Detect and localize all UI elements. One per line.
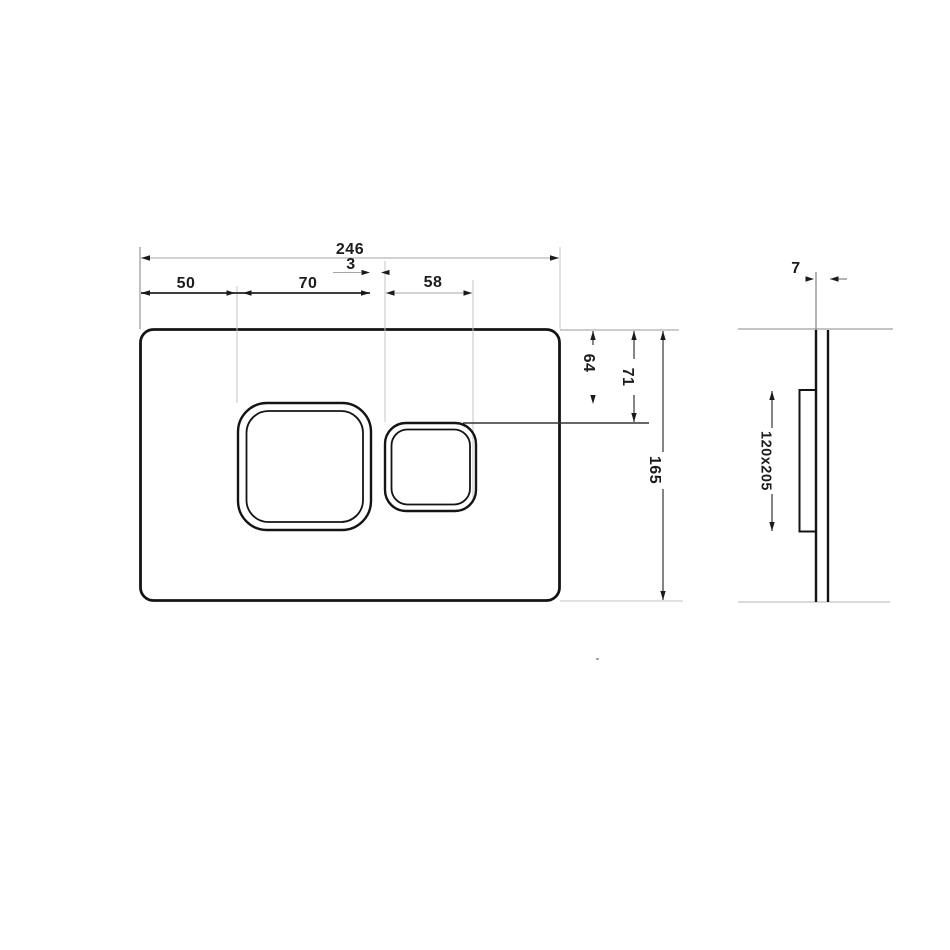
- dim-label-span-70: 70: [299, 276, 318, 292]
- arrow-70-right: [361, 290, 370, 295]
- arrow-71-bottom: [631, 413, 636, 422]
- arrow-71-top: [631, 331, 636, 340]
- dim-label-spacing-3: 3: [346, 257, 355, 273]
- dim-label-span-58: 58: [424, 275, 443, 291]
- plate-outline: [141, 330, 560, 601]
- arrow-7-right: [830, 276, 839, 281]
- arrow-246-left: [141, 255, 150, 261]
- arrow-246-right: [550, 255, 559, 261]
- dim-label-drop-71: 71: [619, 368, 635, 387]
- arrow-165-top: [660, 331, 665, 340]
- arrow-64-top: [590, 331, 595, 340]
- arrow-58-left: [386, 290, 395, 295]
- dim-label-offset-50: 50: [177, 276, 196, 292]
- arrow-3-left: [362, 270, 371, 275]
- drawing-canvas: 246 3 50 70 58 64 71 165 7 120x205: [0, 0, 950, 950]
- arrow-7-left: [806, 276, 815, 281]
- arrow-50-left: [141, 290, 150, 296]
- dim-label-total-height: 165: [646, 456, 662, 484]
- arrow-58-right: [464, 290, 473, 295]
- dim-label-thickness-7: 7: [791, 261, 800, 277]
- arrow-165-bottom: [660, 591, 665, 600]
- arrow-120x205-bottom: [769, 522, 774, 531]
- arrow-70-left: [243, 290, 252, 295]
- dim-label-drop-64: 64: [580, 354, 596, 373]
- front-view: [141, 330, 560, 601]
- dim-label-cutout-120x205: 120x205: [758, 431, 773, 491]
- technical-drawing-linework: [0, 0, 950, 950]
- stray-mark: [596, 658, 599, 660]
- arrow-120x205-top: [769, 391, 774, 400]
- side-mounting-block: [800, 390, 817, 532]
- arrow-64-bottom: [590, 395, 595, 404]
- arrow-50-right: [227, 290, 236, 295]
